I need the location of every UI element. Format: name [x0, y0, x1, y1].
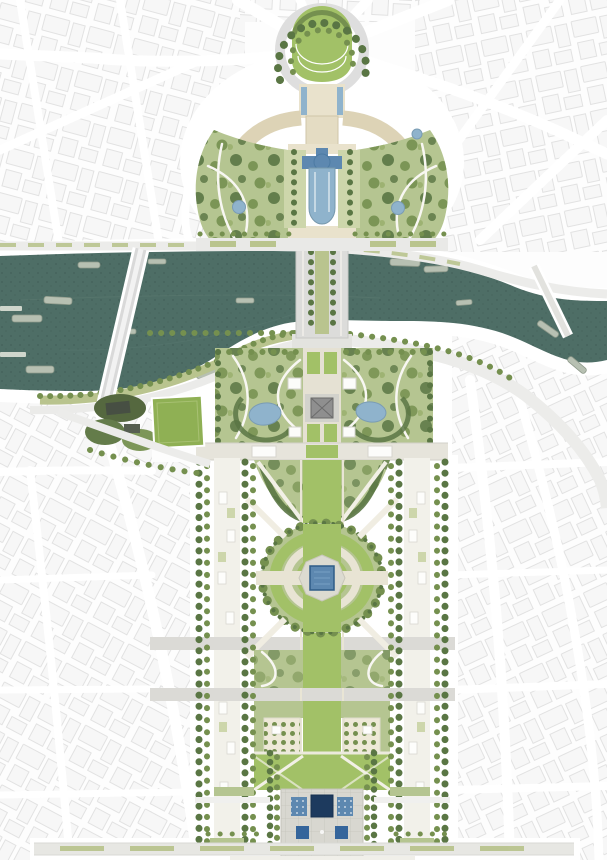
garden-pond	[233, 201, 246, 214]
tower-park	[215, 348, 433, 445]
bosquet-west	[264, 718, 300, 754]
amphitheatre-lawn	[292, 6, 352, 82]
parvis-pool-west	[301, 87, 307, 115]
warsaw-fountain	[284, 148, 360, 228]
grand-oval	[247, 499, 397, 657]
warsaw-fountain-basin	[309, 168, 335, 224]
sports-pitch	[152, 396, 205, 449]
forecourt-basin-sw	[296, 826, 309, 839]
palace-central-block	[306, 116, 338, 146]
bouvard-band	[196, 443, 448, 460]
masterplan-svg	[0, 0, 607, 860]
champ-central-lawn	[303, 460, 341, 523]
iena-bridge	[292, 238, 352, 348]
forecourt-basin-se	[335, 826, 348, 839]
garden-pond	[412, 129, 422, 139]
bosquet-east	[344, 718, 380, 754]
forecourt-pool-center	[311, 795, 333, 817]
garden-pond	[392, 202, 405, 215]
site-plan-image	[0, 0, 607, 860]
parvis-pool-east	[337, 87, 343, 115]
